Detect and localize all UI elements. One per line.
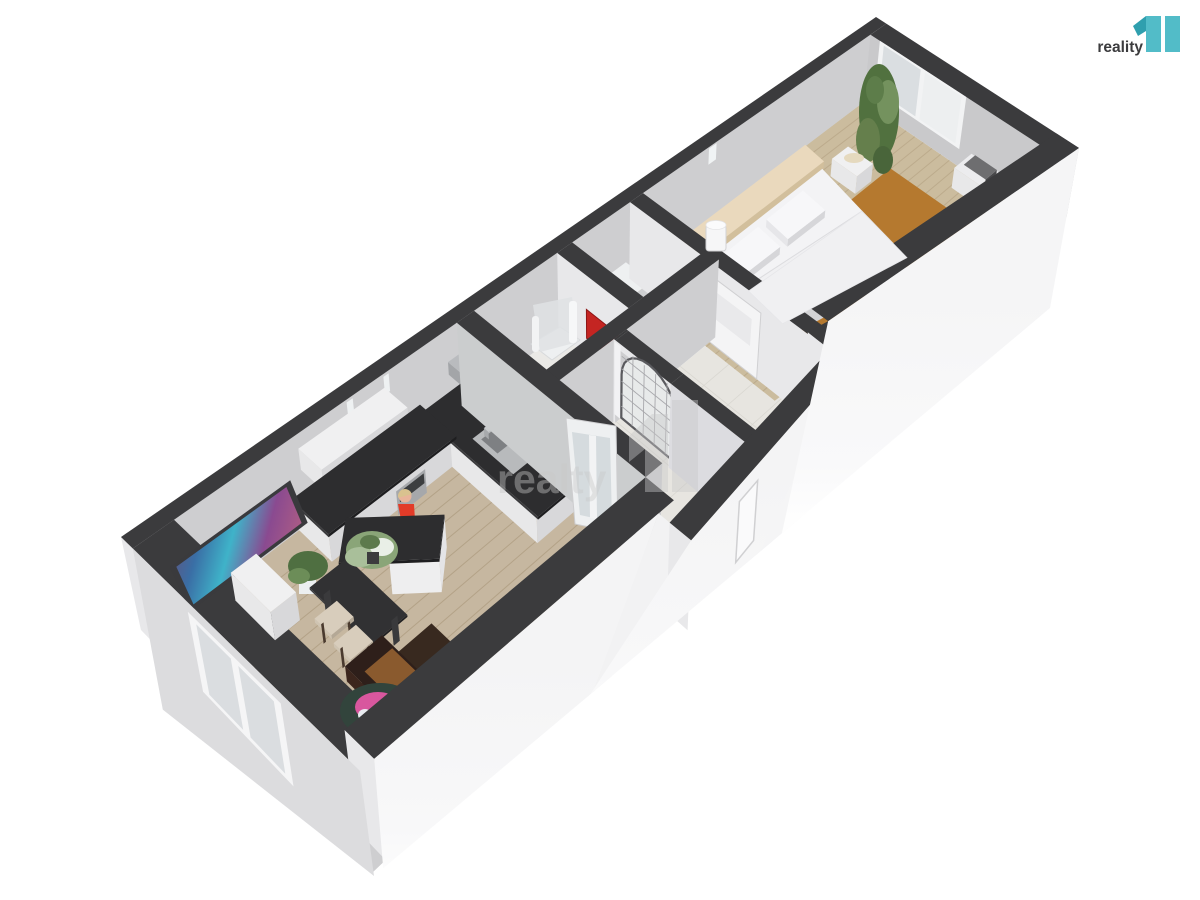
- svg-text:realty: realty: [497, 456, 607, 502]
- svg-text:reality: reality: [1097, 39, 1143, 56]
